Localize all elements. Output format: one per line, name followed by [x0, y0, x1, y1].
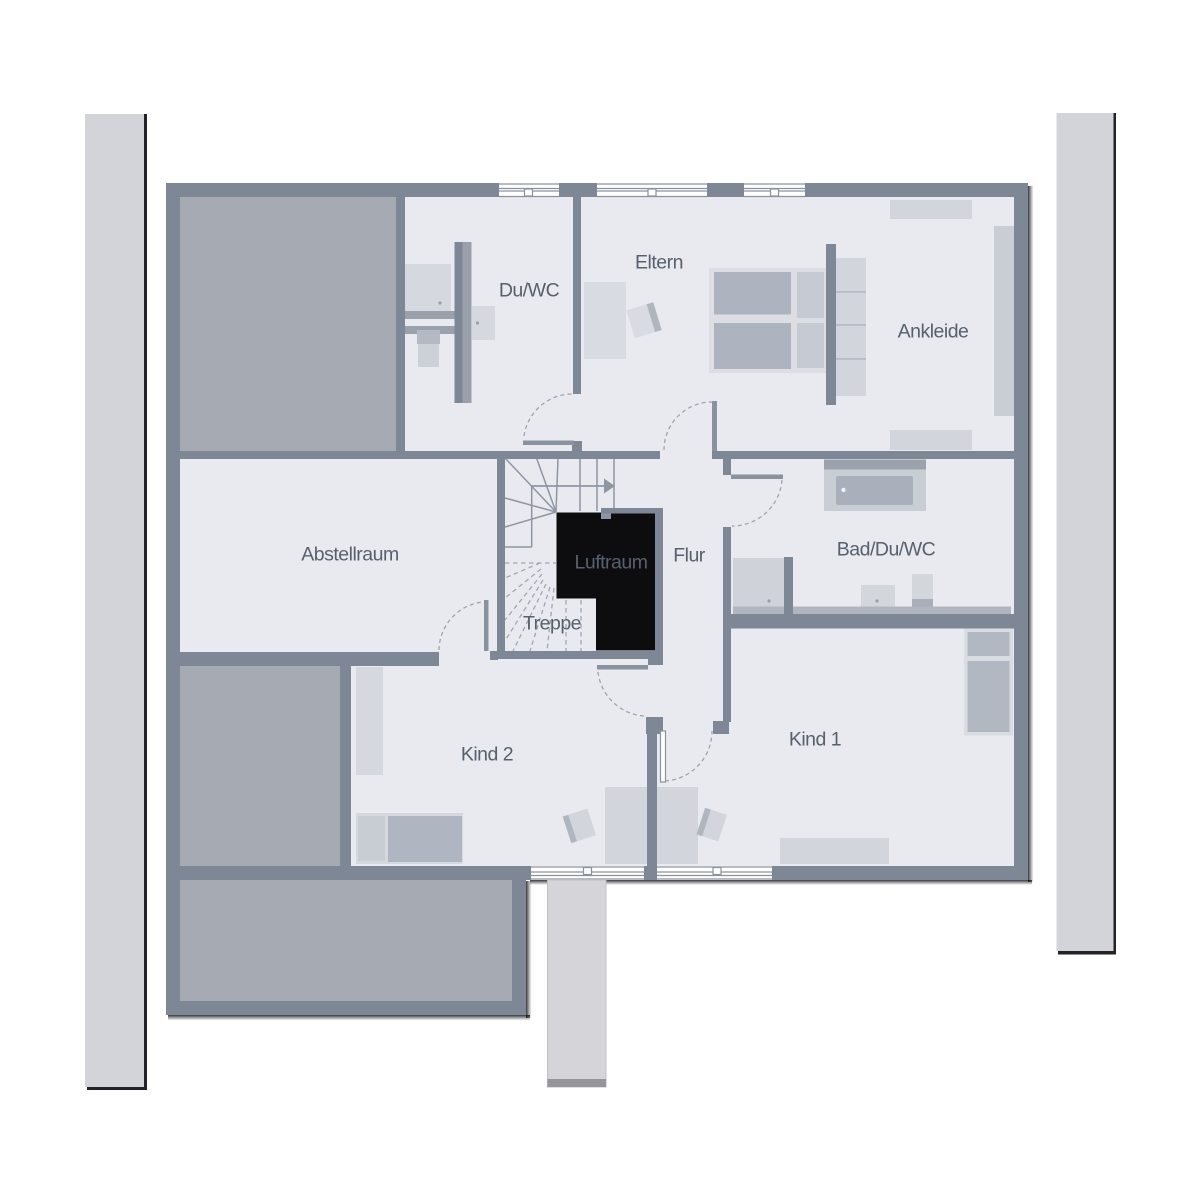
svg-text:Bad/Du/WC: Bad/Du/WC: [837, 539, 936, 561]
svg-text:Kind 1: Kind 1: [789, 729, 841, 751]
svg-text:Luftraum: Luftraum: [575, 552, 648, 574]
svg-text:Abstellraum: Abstellraum: [301, 544, 398, 566]
svg-text:Treppe: Treppe: [523, 613, 581, 635]
svg-text:Ankleide: Ankleide: [898, 321, 969, 343]
svg-text:Flur: Flur: [673, 545, 706, 567]
svg-text:Eltern: Eltern: [635, 252, 683, 274]
svg-text:Du/WC: Du/WC: [499, 280, 560, 302]
svg-text:Kind 2: Kind 2: [461, 744, 513, 766]
